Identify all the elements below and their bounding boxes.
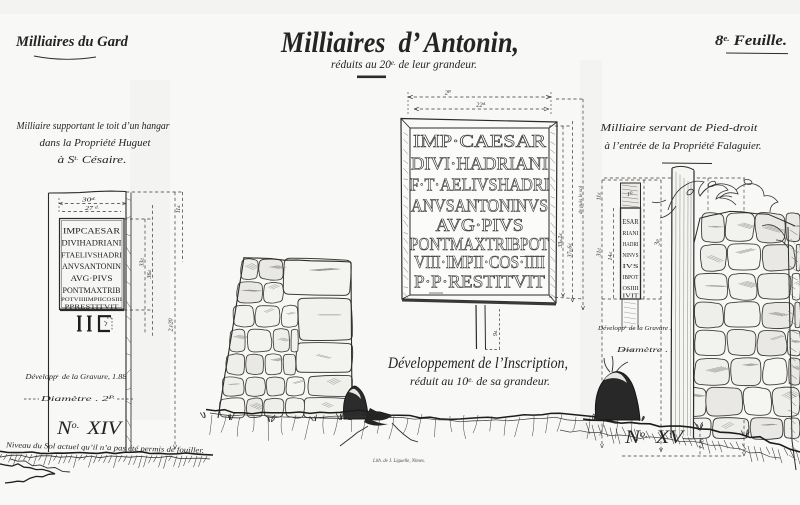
svg-text:réduit au 10e. de sa grandeur.: réduit au 10e. de sa grandeur. — [410, 376, 550, 388]
svg-text:AVG·PIVS: AVG·PIVS — [436, 215, 524, 235]
svg-text:AVG·PIVS: AVG·PIVS — [71, 274, 113, 283]
svg-text:FTAELIVSHADRI: FTAELIVSHADRI — [61, 251, 122, 260]
svg-text:F·T·AELIVSHADRI: F·T·AELIVSHADRI — [410, 175, 549, 195]
svg-text:Diamètre . 2P.: Diamètre . 2P. — [39, 394, 115, 403]
svg-text:P·P·RESTITVIT: P·P·RESTITVIT — [414, 272, 545, 292]
svg-text:IMPCAESAR: IMPCAESAR — [63, 226, 120, 236]
svg-text:à l’entrée de la Propriété Fal: à l’entrée de la Propriété Falaguier. — [605, 141, 762, 152]
svg-text:Milliaire servant de Pied-droi: Milliaire servant de Pied-droit — [599, 123, 759, 134]
svg-text:réduits au 20e. de leur grande: réduits au 20e. de leur grandeur. — [331, 59, 477, 71]
svg-text:RIANI: RIANI — [623, 230, 639, 237]
svg-text:DIVI·HADRIANI: DIVI·HADRIANI — [411, 154, 548, 174]
svg-text:Milliaires du Gard: Milliaires du Gard — [15, 34, 128, 50]
svg-text:IMP·CAESAR: IMP·CAESAR — [413, 131, 546, 151]
svg-text:NINVS: NINVS — [623, 252, 639, 259]
svg-text:ESAR: ESAR — [623, 218, 639, 226]
svg-text:OSIIII: OSIIII — [623, 285, 639, 292]
svg-text:HADRI: HADRI — [623, 241, 639, 248]
svg-text:Développt. de la Gravure, 1.88: Développt. de la Gravure, 1.88 — [24, 373, 127, 381]
svg-text:PONTMAXTRIBPOT: PONTMAXTRIBPOT — [410, 234, 549, 254]
svg-text:dans la Propriété Huguet: dans la Propriété Huguet — [40, 138, 152, 149]
svg-text:POTVIIIIMPIICOSIII: POTVIIIIMPIICOSIII — [61, 297, 122, 303]
svg-text:à St. Césaire.: à St. Césaire. — [58, 155, 127, 166]
svg-text:No. XV: No. XV — [624, 427, 686, 448]
svg-text:ANVSANTONIN: ANVSANTONIN — [62, 262, 121, 271]
svg-text:Développement de l’Inscription: Développement de l’Inscription, — [387, 355, 568, 372]
svg-text:Milliaires d’ Antonin,: Milliaires d’ Antonin, — [280, 26, 519, 59]
svg-text:de puis le sol: de puis le sol — [578, 185, 584, 214]
svg-text:IVIT: IVIT — [623, 294, 640, 300]
svg-text:PONTMAXTRIB: PONTMAXTRIB — [63, 286, 121, 295]
svg-text:14d.: 14d. — [607, 252, 614, 261]
svg-text:Lith. de J. Liguelle, Nimes.: Lith. de J. Liguelle, Nimes. — [372, 458, 425, 464]
svg-text:Milliaire supportant le toit d: Milliaire supportant le toit d’un hangar — [16, 121, 170, 132]
svg-text:ANVSANTONINVS: ANVSANTONINVS — [411, 196, 548, 216]
svg-text:IBPOT: IBPOT — [623, 274, 639, 281]
svg-text:VIII·IMPII·COS·IIII: VIII·IMPII·COS·IIII — [414, 252, 545, 272]
svg-text:IVS: IVS — [623, 263, 640, 270]
svg-text:DIVIHADRIANI: DIVIHADRIANI — [62, 239, 122, 248]
svg-text:3P.: 3P. — [654, 239, 662, 247]
svg-text:2.P20: 2.P20 — [168, 317, 175, 331]
svg-text:No. XIV: No. XIV — [56, 418, 124, 439]
